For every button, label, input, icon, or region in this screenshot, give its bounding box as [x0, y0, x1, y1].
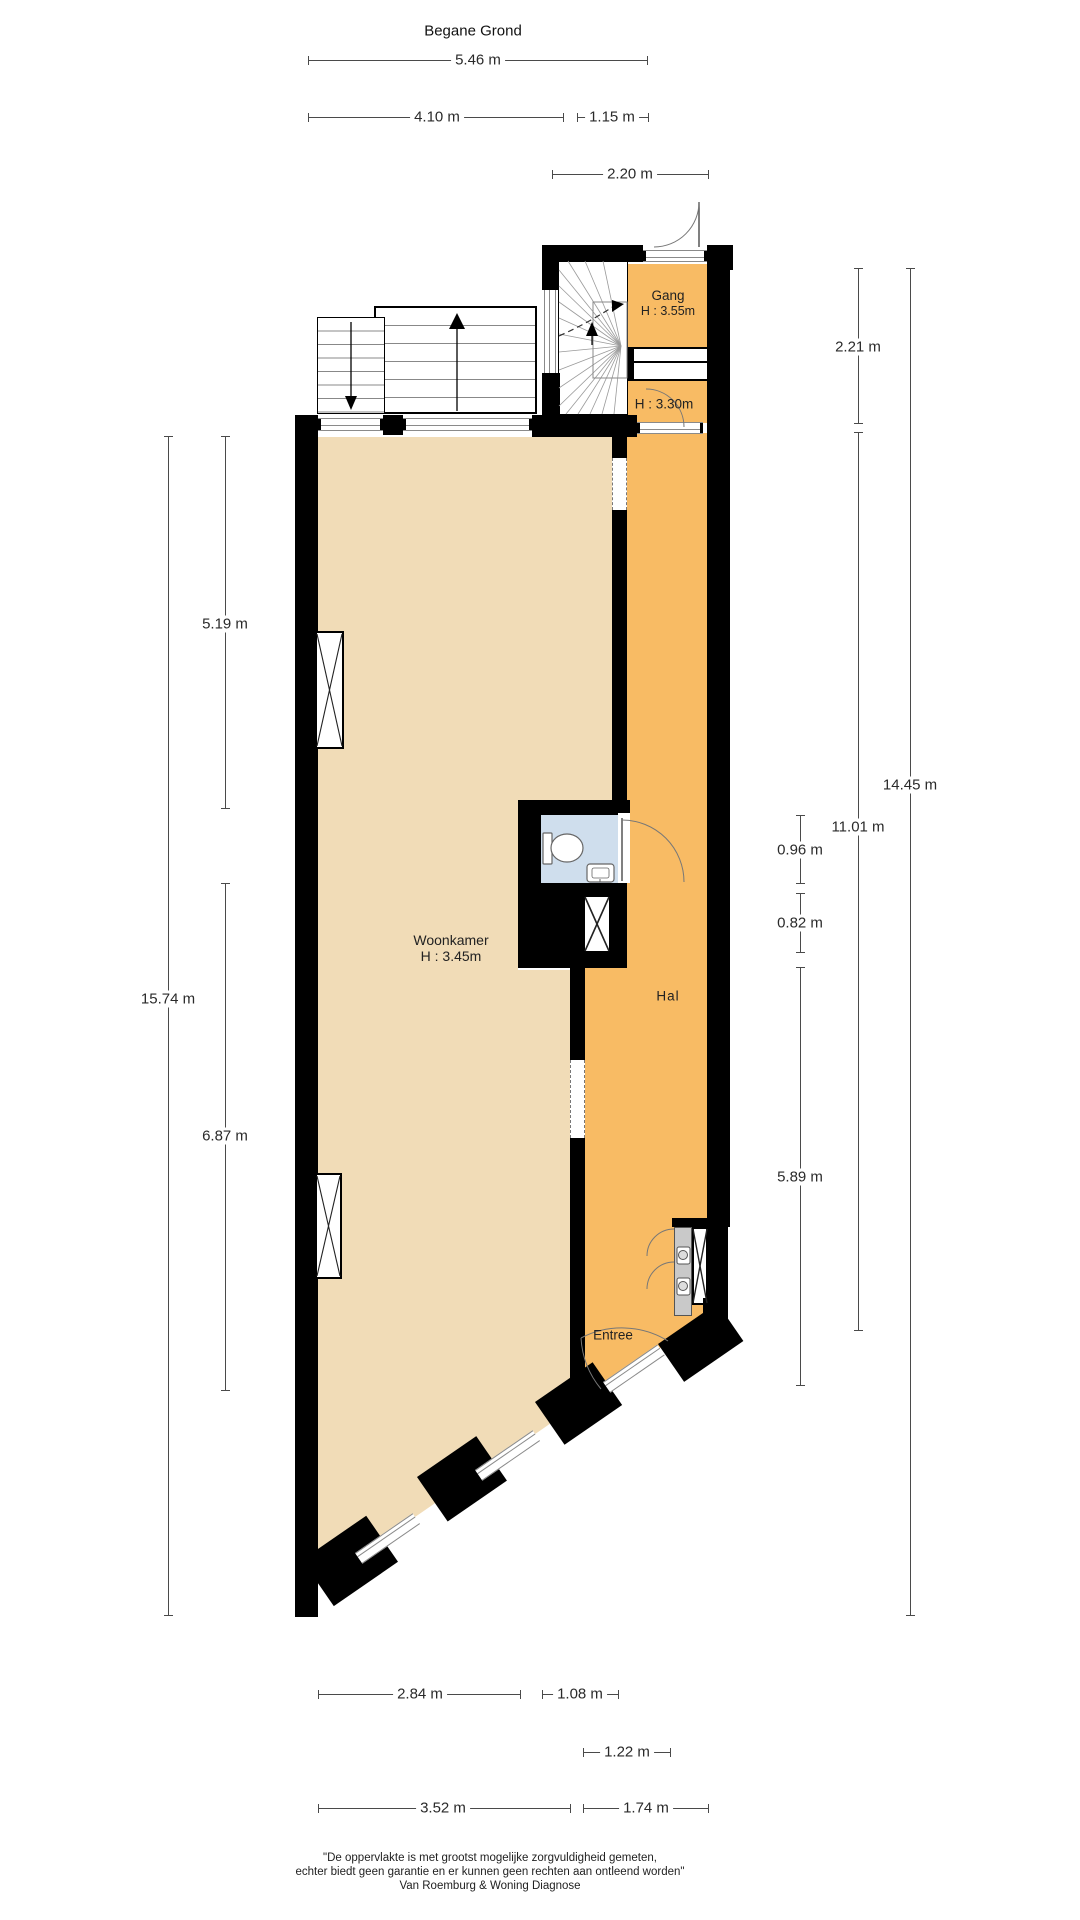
shaft-upper [583, 895, 611, 953]
window-below-stairs-a [318, 418, 383, 431]
dim-174-label: 1.74 m [619, 1800, 673, 1817]
stair-down-block [317, 317, 385, 414]
left-window-box-lower [315, 1173, 342, 1279]
dim-1574-line [168, 436, 169, 1615]
woonkamer-height: H : 3.45m [421, 948, 482, 964]
dim-115-label: 1.15 m [585, 109, 639, 126]
dim-122-label: 1.22 m [600, 1744, 654, 1761]
dim-546-label: 5.46 m [451, 52, 505, 69]
wall-right [707, 245, 730, 1227]
wall-toilet-top [518, 800, 630, 815]
wall-toilet-left [518, 815, 541, 968]
disclaimer-line2: echter biedt geen garantie en er kunnen … [190, 1865, 790, 1879]
front-door-top [654, 202, 699, 247]
toilet-floor [541, 815, 619, 883]
front-door-sill [643, 250, 707, 262]
dim-096-label: 0.96 m [773, 842, 827, 859]
wall-pier-1 [383, 415, 403, 435]
left-window-box-upper [315, 631, 344, 749]
disclaimer-line1: "De oppervlakte is met grootst mogelijke… [190, 1851, 790, 1865]
wall-interior-upper-a [612, 433, 627, 458]
window-below-stairs-b [403, 418, 532, 431]
dim-589-label: 5.89 m [773, 1169, 827, 1186]
disclaimer: "De oppervlakte is met grootst mogelijke… [190, 1851, 790, 1893]
dim-1445-line [910, 268, 911, 1615]
wall-tussen-left [628, 415, 637, 437]
woonkamer-label: Woonkamer H : 3.45m [413, 932, 488, 964]
wall-interior-lower-a [570, 968, 585, 1060]
wall-interior-lower-b [570, 1138, 585, 1395]
dim-1101-line [858, 432, 859, 1330]
page-title: Begane Grond [424, 23, 522, 40]
opening-interior-lower [570, 1060, 585, 1138]
dim-1445-label: 14.45 m [879, 777, 941, 794]
dim-108-label: 1.08 m [553, 1686, 607, 1703]
dim-220-label: 2.20 m [603, 166, 657, 183]
dim-221-label: 2.21 m [831, 339, 885, 356]
wall-winder-left-bottom [542, 373, 560, 415]
gang-name: Gang [651, 288, 684, 303]
opening-interior-upper [612, 458, 627, 510]
dim-284-label: 2.84 m [393, 1686, 447, 1703]
wall-shaft-bottom [583, 953, 611, 968]
floorplan-page: Begane Grond [0, 0, 1080, 1920]
dim-687-label: 6.87 m [198, 1128, 252, 1145]
disclaimer-line3: Van Roemburg & Woning Diagnose [190, 1879, 790, 1893]
wall-winder-left-top [542, 247, 558, 290]
stair-up-block [374, 306, 537, 414]
dim-1574-label: 15.74 m [137, 991, 199, 1008]
gang-label: Gang H : 3.55m [641, 288, 695, 318]
toilet-door-gap [618, 813, 630, 883]
dim-519-label: 5.19 m [198, 616, 252, 633]
tussen-height-label: H : 3.30m [635, 397, 694, 412]
dim-082-label: 0.82 m [773, 915, 827, 932]
wall-pocket-top [672, 1218, 730, 1227]
winder-side-window [544, 290, 556, 373]
dim-1101-label: 11.01 m [827, 819, 888, 836]
window-tussen-hal [637, 422, 703, 434]
entree-counter [674, 1227, 692, 1316]
wall-below-toilet [541, 883, 620, 895]
wall-interior-upper-b [612, 510, 627, 808]
entree-label: Entree [593, 1328, 633, 1343]
dim-352-label: 3.52 m [416, 1800, 470, 1817]
wall-shaft-left [541, 895, 583, 968]
winder-stair [558, 260, 628, 415]
dim-410-label: 4.10 m [410, 109, 464, 126]
woonkamer-name: Woonkamer [413, 932, 488, 948]
wall-shaft-right [611, 883, 627, 968]
shaft-lower [692, 1227, 708, 1305]
landing-steps [628, 347, 707, 381]
hal-label: Hal [656, 989, 679, 1004]
wall-left [295, 415, 318, 1555]
gang-height: H : 3.55m [641, 304, 695, 318]
